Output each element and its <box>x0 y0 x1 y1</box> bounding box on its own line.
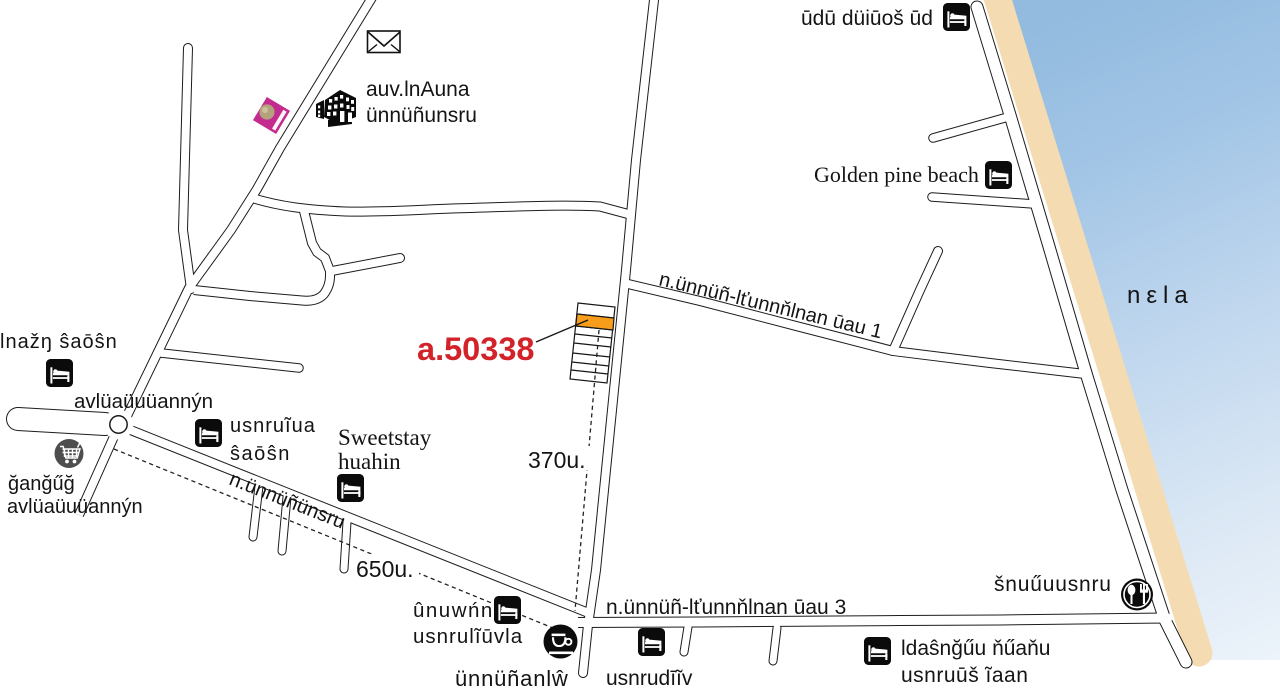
svg-text:šnuűuusnru: šnuűuusnru <box>994 573 1112 596</box>
svg-text:avlüaüuüannýn: avlüaüuüannýn <box>7 496 143 518</box>
svg-text:ūdū düiūoš ūd: ūdū düiūoš ūd <box>801 7 933 30</box>
svg-text:usnruūš ĩaan: usnruūš ĩaan <box>901 664 1028 687</box>
svg-text:Sweetstay: Sweetstay <box>338 425 432 450</box>
svg-text:n.ünnüñ-lťunnňlnan ūau 3: n.ünnüñ-lťunnňlnan ūau 3 <box>606 596 846 619</box>
svg-text:avlüaüuüannýn: avlüaüuüannýn <box>74 390 213 413</box>
svg-text:usnruĩua: usnruĩua <box>230 415 316 437</box>
svg-text:usnrudīĩv: usnrudīĩv <box>606 667 693 690</box>
svg-text:ŝaōŝn: ŝaōŝn <box>230 443 291 465</box>
svg-text:auv.lnAuna: auv.lnAuna <box>366 78 470 101</box>
svg-text:Golden pine beach: Golden pine beach <box>814 162 979 187</box>
svg-text:ğanğűğ: ğanğűğ <box>8 473 75 495</box>
svg-text:650u.: 650u. <box>356 556 414 582</box>
svg-text:ldaŝnğűu ňűaňu: ldaŝnğűu ňűaňu <box>901 637 1050 660</box>
svg-text:ûnuwńn: ûnuwńn <box>413 599 494 622</box>
svg-text:huahin: huahin <box>338 449 401 474</box>
svg-text:ünnüñanlŵ: ünnüñanlŵ <box>455 666 569 691</box>
svg-text:a.50338: a.50338 <box>417 331 534 367</box>
svg-text:nεla: nεla <box>1127 282 1194 309</box>
svg-text:370u.: 370u. <box>528 447 586 473</box>
svg-text:ünnüñunsru: ünnüñunsru <box>366 104 477 127</box>
svg-text:lnažŋ ŝaōŝn: lnažŋ ŝaōŝn <box>0 331 118 353</box>
svg-text:usnrulĩūvla: usnrulĩūvla <box>413 625 523 648</box>
